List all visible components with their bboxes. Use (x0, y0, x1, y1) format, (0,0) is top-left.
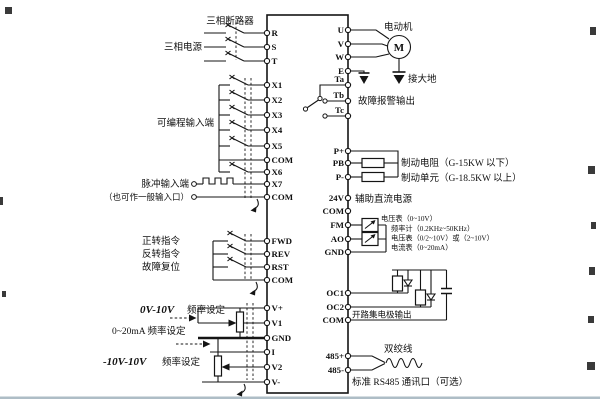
motor-icon: M (388, 36, 411, 59)
meter-label-voltmeter-ao: 电压表（0/2~10V）或（2~10V） (391, 234, 494, 243)
fault-output-label: 故障报警输出 (358, 95, 415, 107)
terminal-label: FM (330, 220, 344, 230)
terminal-label: 485+ (326, 351, 344, 361)
braking-circuit: 制动电阻（G-15KW 以下） 制动单元（G-18.5KW 以上） (348, 151, 522, 184)
meter-label-voltmeter-fm: 电压表（0~10V） (381, 214, 437, 223)
motor-symbol: M (394, 42, 405, 54)
reverse-label: 反转指令 (142, 248, 181, 260)
terminal-label: COM (323, 315, 345, 325)
terminal-label: OC2 (326, 302, 344, 312)
ground-label: 接大地 (408, 73, 437, 85)
terminal-label: Tb (333, 90, 344, 100)
ground-icon (348, 71, 370, 84)
range-neg10-10v-label: -10V-10V (103, 356, 148, 368)
analog-outputs: 电压表（0~10V） 频率计（0.2KHz~50KHz） 电压表（0/2~10V… (348, 214, 494, 252)
relay-coil-icon (416, 270, 426, 307)
pulse-common-node (192, 195, 197, 200)
rs485-label: 标准 RS485 通讯口（可选） (352, 376, 468, 388)
diode-icon (427, 270, 435, 307)
terminal-label: X3 (272, 110, 283, 120)
terminal-label: R (272, 28, 279, 38)
twisted-pair-icon (386, 359, 422, 368)
open-collector-label: 开路集电极输出 (352, 310, 412, 320)
terminal-label: AO (331, 234, 344, 244)
terminal-label: V2 (272, 362, 283, 372)
terminal-label: W (335, 52, 344, 62)
power-source-label: 三相电源 (164, 41, 203, 53)
terminal-label: V- (272, 377, 281, 387)
analog-frequency-inputs: 0V-10V 频率设定 0~20mA 频率设定 -10V-10V 频率设定 (103, 303, 267, 397)
terminal-label: 24V (329, 193, 345, 203)
terminal-label: S (272, 42, 277, 52)
twisted-pair-label: 双绞线 (384, 343, 413, 355)
terminal-label: 485- (328, 365, 344, 375)
terminal-label: X1 (272, 80, 283, 90)
capacitor-icon (441, 270, 452, 320)
terminal-label: GND (324, 247, 344, 257)
terminal-label: X7 (272, 179, 283, 189)
brake-resistor-icon (362, 159, 384, 168)
three-phase-input: 三相断路器 三相电源 (164, 15, 267, 61)
terminal-label: COM (272, 192, 294, 202)
terminal-label: Tc (335, 105, 344, 115)
input-switch-icons (219, 75, 267, 146)
forward-label: 正转指令 (142, 235, 181, 247)
adjust-arrow-icon (176, 341, 211, 348)
terminal-label: X6 (272, 167, 283, 177)
terminal-label: P+ (334, 146, 344, 156)
terminal-label: I (272, 347, 276, 357)
terminal-label: REV (272, 249, 291, 259)
motor-output: 电动机 M 接大地 (348, 21, 437, 85)
page-bottom-rule (0, 397, 600, 400)
potentiometer-icon (237, 308, 244, 338)
programmable-inputs-label: 可编程输入端 (157, 117, 215, 129)
terminal-label: GND (272, 333, 292, 343)
diode-icon (404, 270, 412, 293)
terminal-label: V1 (272, 318, 283, 328)
range-0-10v-suffix: 频率设定 (187, 304, 226, 316)
terminal-label: COM (272, 155, 294, 165)
ground-icon (393, 59, 406, 85)
terminal-label: X4 (272, 125, 283, 135)
meter-label-ammeter: 电流表（0~20mA） (391, 243, 452, 252)
terminal-label: PB (333, 158, 344, 168)
shield-hook-icon (250, 282, 258, 296)
terminal-label: COM (323, 206, 345, 216)
open-collector-outputs: 开路集电极输出 (348, 270, 452, 320)
terminal-label: T (272, 56, 278, 66)
terminal-label: RST (272, 262, 289, 272)
shield-hook-icon (237, 384, 246, 397)
run-commands: 正转指令 反转指令 故障复位 (142, 231, 267, 296)
aux-power-label: 辅助直流电源 (355, 193, 413, 205)
terminal-label: FWD (272, 236, 293, 246)
meter-label-freq-counter: 频率计（0.2KHz~50KHz） (391, 224, 474, 233)
terminal-label: U (338, 25, 345, 35)
brake-unit-icon (362, 173, 384, 182)
range-0-20ma-label: 0~20mA 频率设定 (112, 325, 186, 337)
shield-hook-icon (251, 199, 259, 213)
reset-label: 故障复位 (142, 261, 181, 273)
pulse-input: 脉冲输入端 （也可作一般输入口） (104, 178, 267, 213)
meter-icon (362, 219, 378, 232)
brake-resistor-label: 制动电阻（G-15KW 以下） (401, 157, 515, 169)
breaker-switch-icon (204, 22, 267, 61)
potentiometer-icon (215, 338, 222, 382)
pulse-input-note: （也可作一般输入口） (104, 192, 189, 202)
meter-icon (362, 233, 378, 246)
range-0-10v-label: 0V-10V (140, 304, 176, 316)
terminal-label: OC1 (326, 288, 344, 298)
square-wave-icon (203, 178, 233, 184)
brake-unit-label: 制动单元（G-18.5KW 以上） (401, 172, 522, 184)
terminal-label: Ta (335, 74, 345, 84)
terminal-label: P- (336, 172, 344, 182)
relay-coil-icon (393, 270, 403, 293)
rs485-comm: 双绞线 标准 RS485 通讯口（可选） (348, 343, 468, 388)
breaker-label: 三相断路器 (206, 15, 254, 27)
pulse-input-label: 脉冲输入端 (141, 178, 189, 190)
terminal-label: V+ (272, 303, 283, 313)
terminal-label: X2 (272, 95, 283, 105)
motor-label: 电动机 (384, 21, 413, 33)
range-neg10-10v-suffix: 频率设定 (162, 356, 201, 368)
wiring-diagram: 三相断路器 三相电源 可编程输入端 脉冲输入端 （也可作一般输入口） (0, 0, 600, 400)
terminal-label: COM (272, 275, 294, 285)
terminal-label: V (338, 39, 345, 49)
pulse-source-node (192, 182, 197, 187)
terminal-label: X5 (272, 141, 283, 151)
diagram-svg: 三相断路器 三相电源 可编程输入端 脉冲输入端 （也可作一般输入口） (0, 0, 600, 400)
